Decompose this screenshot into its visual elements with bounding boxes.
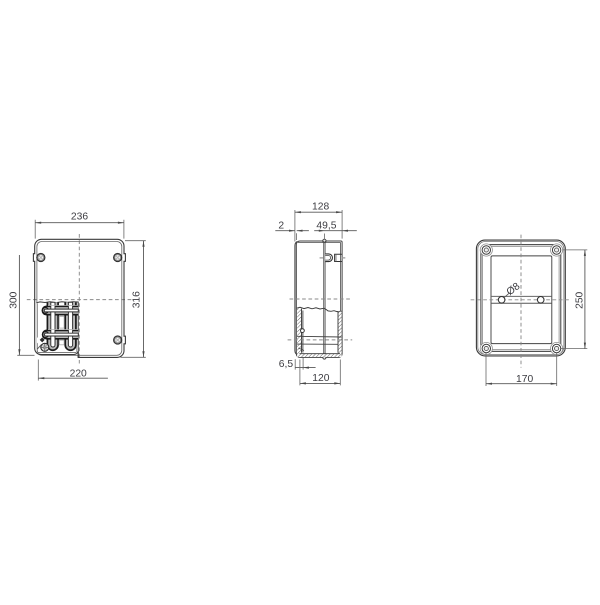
svg-text:2: 2 <box>278 220 284 231</box>
svg-text:120: 120 <box>312 373 329 384</box>
svg-text:170: 170 <box>516 374 533 385</box>
svg-text:236: 236 <box>71 212 88 223</box>
svg-text:250: 250 <box>575 291 586 308</box>
svg-text:220: 220 <box>70 368 87 379</box>
svg-text:128: 128 <box>312 202 329 213</box>
svg-text:300: 300 <box>8 291 19 308</box>
svg-text:316: 316 <box>131 291 142 308</box>
svg-text:6,5: 6,5 <box>279 359 294 370</box>
svg-text:49,5: 49,5 <box>316 221 336 232</box>
